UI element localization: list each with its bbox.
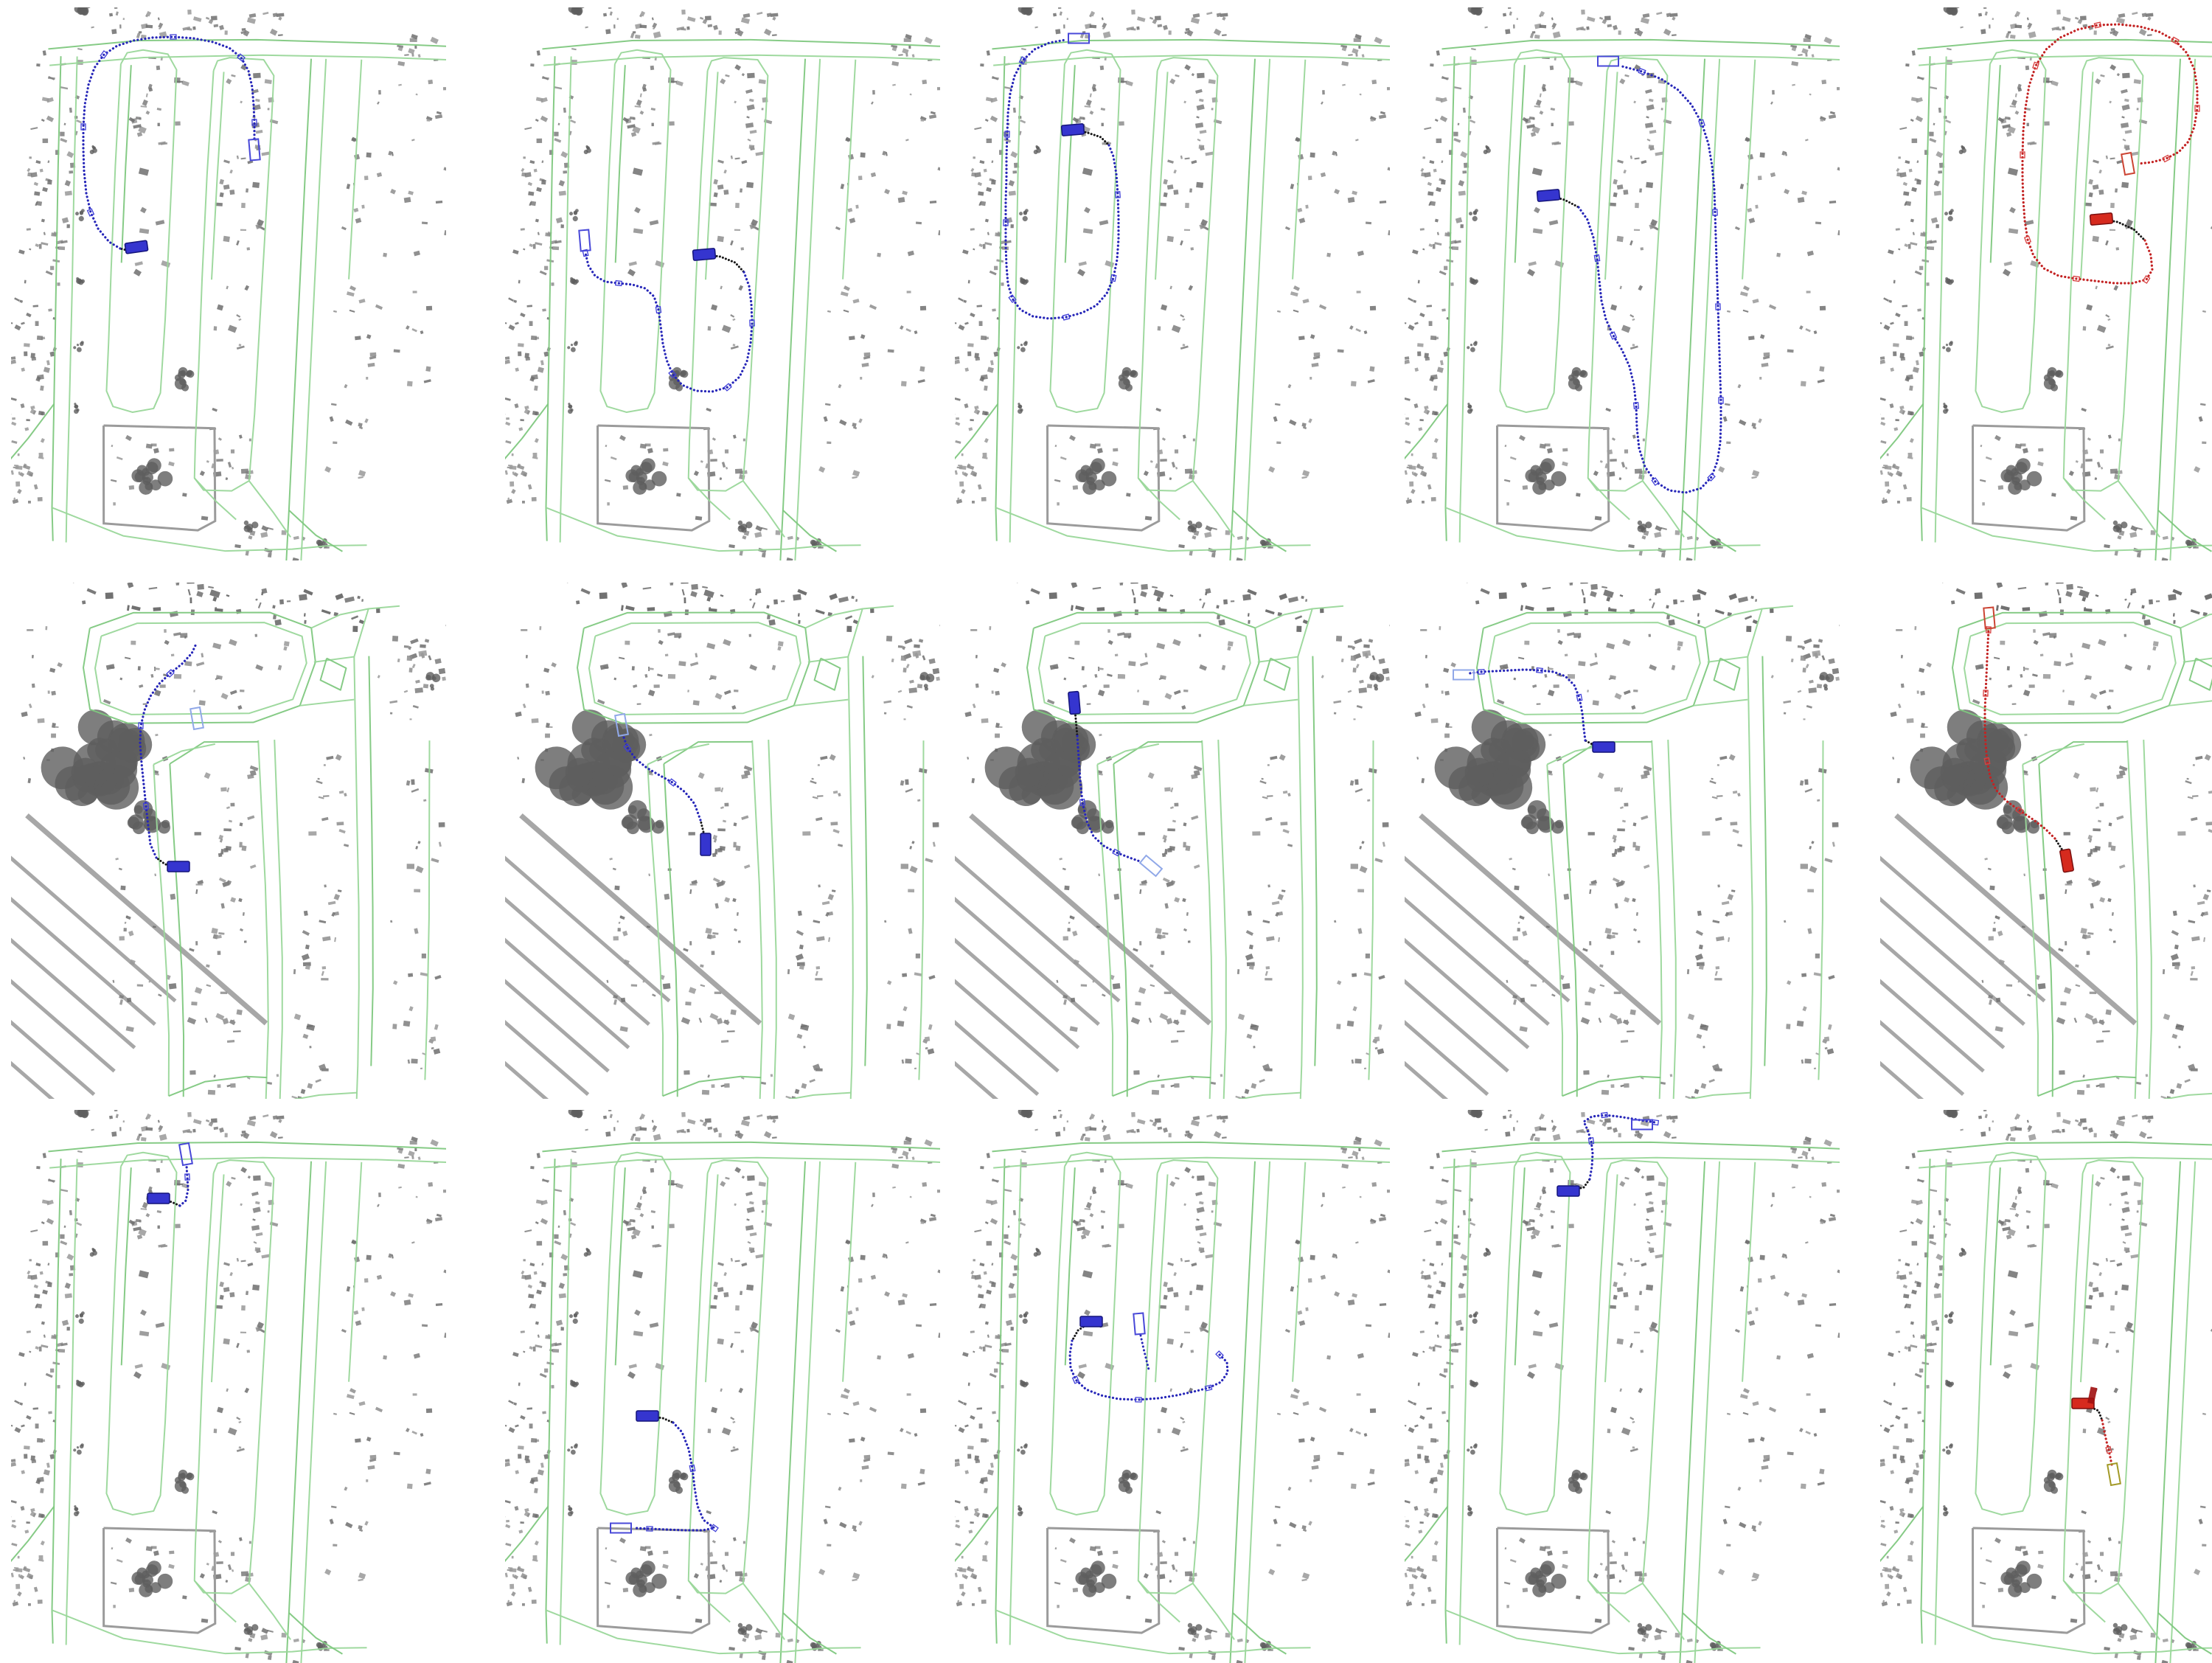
map-canvas-r3c5 bbox=[1880, 1110, 2212, 1663]
future-path bbox=[1006, 40, 1119, 319]
map-panel-r1c2 bbox=[505, 7, 940, 560]
map-panel-r1c3 bbox=[955, 7, 1390, 560]
base-map-reference bbox=[1405, 1110, 1840, 1663]
base-map-reference bbox=[1880, 583, 2212, 1099]
map-panel-r3c2 bbox=[505, 1110, 940, 1663]
map-canvas-r1c5 bbox=[1880, 7, 2212, 560]
goal-marker bbox=[579, 229, 590, 251]
trajectory-figure-board bbox=[0, 0, 2212, 1659]
base-map-reference bbox=[955, 7, 1390, 560]
trajectory-layer bbox=[81, 35, 260, 254]
map-canvas-r1c3 bbox=[955, 7, 1390, 560]
base-map-reference bbox=[1880, 7, 2212, 560]
goal-marker bbox=[190, 707, 204, 729]
future-path bbox=[1070, 1341, 1228, 1400]
goal-marker bbox=[1140, 855, 1162, 876]
map-canvas-r3c2 bbox=[505, 1110, 940, 1663]
base-map-reference bbox=[1880, 1110, 2212, 1663]
base-map-reference bbox=[505, 583, 940, 1099]
map-canvas-r1c1 bbox=[11, 7, 446, 560]
map-panel-r2c2 bbox=[505, 583, 940, 1099]
map-canvas-r2c5 bbox=[1880, 583, 2212, 1099]
trajectory-layer bbox=[2020, 22, 2199, 283]
vehicle-marker bbox=[1061, 124, 1084, 136]
future-path bbox=[585, 253, 752, 392]
vehicle-heading-flag bbox=[2087, 1386, 2097, 1403]
map-panel-r1c5 bbox=[1880, 7, 2212, 560]
goal-marker bbox=[1453, 670, 1474, 680]
future-path bbox=[83, 37, 254, 249]
future-path bbox=[2102, 1420, 2112, 1465]
map-panel-r2c1 bbox=[11, 583, 446, 1099]
map-canvas-r3c3 bbox=[955, 1110, 1390, 1663]
base-map-reference bbox=[11, 1110, 446, 1663]
map-panel-r2c4 bbox=[1405, 583, 1840, 1099]
goal-marker bbox=[1598, 57, 1618, 66]
vehicle-marker bbox=[636, 1411, 658, 1421]
map-canvas-r3c4 bbox=[1405, 1110, 1840, 1663]
vehicle-marker bbox=[692, 249, 715, 261]
vehicle-marker bbox=[147, 1193, 170, 1204]
map-panel-r1c4 bbox=[1405, 7, 1840, 560]
map-canvas-r2c2 bbox=[505, 583, 940, 1099]
map-panel-r3c1 bbox=[11, 1110, 446, 1663]
map-canvas-r2c4 bbox=[1405, 583, 1840, 1099]
base-map-reference bbox=[505, 1110, 940, 1663]
vehicle-marker bbox=[167, 861, 189, 872]
goal-marker bbox=[2121, 153, 2135, 175]
base-map-reference bbox=[955, 1110, 1390, 1663]
vehicle-marker bbox=[1537, 190, 1559, 202]
map-panel-r2c5 bbox=[1880, 583, 2212, 1099]
base-map-reference bbox=[1405, 583, 1840, 1099]
base-map-reference bbox=[955, 583, 1390, 1099]
base-map-reference bbox=[505, 7, 940, 560]
map-canvas-r3c1 bbox=[11, 1110, 446, 1663]
goal-marker bbox=[2107, 1463, 2121, 1485]
map-panel-r3c3 bbox=[955, 1110, 1390, 1663]
base-map-reference bbox=[1405, 7, 1840, 560]
goal-marker bbox=[1133, 1313, 1144, 1334]
trajectory-layer bbox=[2072, 1386, 2121, 1485]
map-canvas-r2c3 bbox=[955, 583, 1390, 1099]
map-panel-r1c1 bbox=[11, 7, 446, 560]
vehicle-marker bbox=[2060, 849, 2074, 872]
vehicle-marker bbox=[1068, 691, 1081, 714]
base-map-reference bbox=[11, 7, 446, 560]
map-canvas-r2c1 bbox=[11, 583, 446, 1099]
map-canvas-r1c2 bbox=[505, 7, 940, 560]
map-canvas-r1c4 bbox=[1405, 7, 1840, 560]
trajectory-layer bbox=[147, 1143, 192, 1206]
map-panel-r3c5 bbox=[1880, 1110, 2212, 1663]
vehicle-marker bbox=[1593, 742, 1615, 752]
map-panel-r2c3 bbox=[955, 583, 1390, 1099]
base-map-reference bbox=[11, 583, 446, 1099]
trajectory-layer bbox=[139, 642, 204, 872]
vehicle-marker bbox=[1080, 1316, 1102, 1327]
vehicle-marker bbox=[700, 833, 711, 855]
vehicle-marker bbox=[125, 240, 148, 254]
vehicle-marker bbox=[1557, 1186, 1579, 1196]
goal-marker bbox=[179, 1143, 192, 1165]
vehicle-marker bbox=[2090, 213, 2112, 226]
map-panel-r3c4 bbox=[1405, 1110, 1840, 1663]
